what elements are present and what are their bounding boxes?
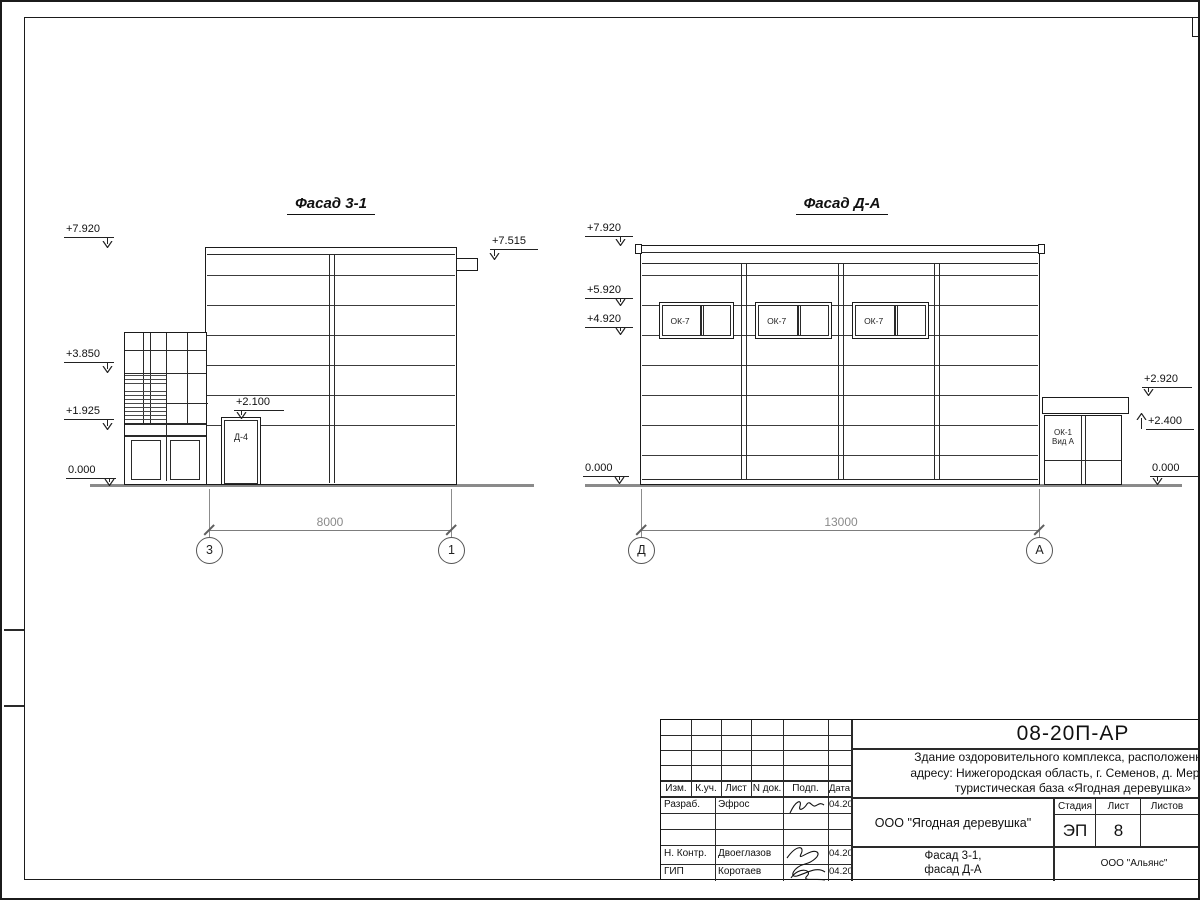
annex-door-panel: [170, 440, 200, 480]
elevation-mark: +3.850: [64, 348, 114, 363]
elevation-arrow-icon: [102, 419, 113, 430]
tb-header-list: Лист: [721, 781, 751, 796]
parapet-line: [642, 252, 1038, 253]
elevation-arrow-icon: [102, 362, 113, 373]
facade-right-title: Фасад Д-А: [780, 195, 904, 215]
elevation-mark: +7.515: [490, 235, 538, 250]
elevation-mark: +2.400: [1146, 415, 1194, 430]
tb-date: 04.20: [829, 866, 851, 880]
panel-joints: [642, 264, 1038, 478]
tb-name: Двоеглазов: [718, 848, 784, 862]
tb-header-izm: Изм.: [661, 781, 691, 796]
facade-mullion: [329, 254, 330, 483]
annex-mullion: [166, 333, 167, 481]
dimension-line: [209, 530, 452, 531]
tb-role: ГИП: [664, 866, 716, 880]
elevation-mark: +7.920: [585, 222, 633, 237]
drawing-sheet: Фасад 3-1 Д-4 +7.920 +3.850 +1.925 0.000: [0, 0, 1200, 900]
facade-mullion: [843, 264, 844, 480]
tb-header-podp: Подп.: [783, 781, 828, 796]
parapet-cap: [635, 244, 642, 254]
elevation-arrow-icon: [102, 237, 113, 248]
axis-bubble-3: 3: [196, 537, 223, 564]
dimension-value: 13000: [791, 515, 891, 529]
annex-glazing-ok1: ОК-1 Вид А: [1044, 415, 1122, 485]
annex-mullion: [187, 333, 188, 423]
elevation-arrow-icon: [615, 327, 626, 335]
window-ok7: ОК-7: [659, 302, 734, 339]
tb-header-data: Дата: [828, 781, 851, 796]
facade-mullion: [746, 264, 747, 480]
axis-bubble-d: Д: [628, 537, 655, 564]
dimension-value: 8000: [280, 515, 380, 529]
stair-annex: [124, 332, 207, 485]
elevation-mark: 0.000: [66, 464, 116, 479]
elevation-arrow-icon: [614, 476, 625, 484]
elevation-mark: 0.000: [583, 462, 629, 477]
window-ok7: ОК-7: [852, 302, 929, 339]
elevation-mark: 0.000: [1150, 462, 1200, 477]
door-d4-leaf: [224, 420, 258, 484]
elevation-mark: +4.920: [585, 313, 633, 328]
annex-door-panel: [131, 440, 161, 480]
tb-project-title: Здание оздоровительного комплекса, распо…: [853, 750, 1200, 796]
facade-mullion: [334, 254, 335, 483]
window-label: ОК-7: [660, 316, 700, 326]
elevation-mark: +7.920: [64, 223, 114, 238]
plinth-line: [642, 479, 1038, 480]
door-d4: Д-4: [221, 417, 261, 485]
elevation-arrow-icon: [1152, 476, 1163, 485]
tb-code: 08-20П-АР: [853, 720, 1200, 748]
axis-bubble-a: А: [1026, 537, 1053, 564]
elevation-arrow-icon: [104, 478, 115, 486]
annex-slab: [125, 423, 206, 425]
elevation-arrow-icon: [489, 249, 500, 260]
margin-divider: [4, 629, 24, 631]
margin-divider: [4, 705, 24, 707]
tb-date: 04.20: [829, 848, 851, 862]
tb-sheet-value: 8: [1097, 816, 1140, 846]
elevation-arrow-icon: [236, 410, 247, 419]
facade-mullion: [934, 264, 935, 480]
annex-slab: [125, 435, 206, 437]
tb-role: Н. Контр.: [664, 848, 716, 862]
annex-roof-slab: [1042, 397, 1129, 414]
corner-box: [1192, 17, 1200, 37]
tb-contractor: ООО "Альянс": [1055, 847, 1200, 880]
tb-sheets-label: Листов: [1142, 798, 1192, 814]
tb-drawing-title: Фасад 3-1, фасад Д-А: [853, 847, 1053, 880]
elevation-arrow-up-icon: [1136, 413, 1147, 429]
dimension-line: [641, 530, 1040, 531]
tb-role: Разраб.: [664, 799, 716, 813]
facade-left-title: Фасад 3-1: [261, 195, 401, 215]
elevation-arrow-icon: [1143, 387, 1154, 396]
elevation-mark: +2.100: [234, 396, 284, 411]
axis-bubble-1: 1: [438, 537, 465, 564]
signature: [787, 797, 827, 817]
tb-date: 04.20: [829, 799, 851, 813]
facade-mullion: [741, 264, 742, 480]
door-label: Д-4: [222, 432, 260, 442]
tb-stage-value: ЭП: [1055, 816, 1095, 846]
window-label: ОК-7: [756, 316, 797, 326]
annex-louvers: [125, 375, 166, 387]
tb-org: ООО "Ягодная деревушка": [853, 799, 1053, 846]
title-block: Изм. К.уч. Лист N док. Подп. Дата Разраб…: [660, 719, 1200, 880]
annex-transom: [166, 403, 208, 404]
window-ok7: ОК-7: [755, 302, 832, 339]
annex-louvers: [125, 391, 166, 421]
tb-header-kuch: К.уч.: [691, 781, 721, 796]
annex-transom: [125, 350, 206, 351]
elevation-mark: +5.920: [585, 284, 633, 299]
elevation-mark: +1.925: [64, 405, 114, 420]
scupper: [456, 258, 478, 271]
facade-mullion: [939, 264, 940, 480]
window-label: ОК-7: [853, 316, 894, 326]
tb-name: Эфрос: [718, 799, 782, 813]
window-label: ОК-1 Вид А: [1045, 428, 1081, 446]
elevation-arrow-icon: [615, 298, 626, 306]
tb-stage-label: Стадия: [1055, 798, 1095, 814]
tb-sheet-label: Лист: [1097, 798, 1140, 814]
tb-header-ndok: N док.: [751, 781, 783, 796]
parapet-cap: [1038, 244, 1045, 254]
tb-name: Коротаев: [718, 866, 782, 880]
elevation-arrow-icon: [615, 236, 626, 246]
elevation-mark: +2.920: [1142, 373, 1192, 388]
signature: [783, 842, 831, 884]
facade-mullion: [838, 264, 839, 480]
